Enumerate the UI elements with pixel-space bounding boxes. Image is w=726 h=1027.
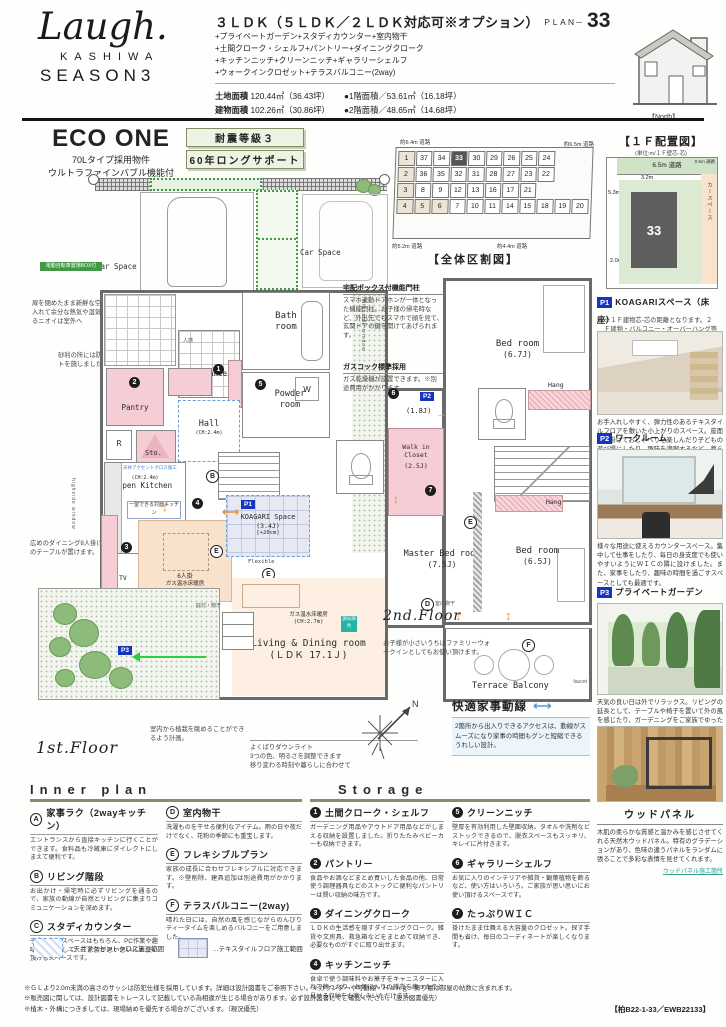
- inner-badge-c: C: [30, 920, 43, 933]
- feature-line-1: +プライベートガーデン+スタディカウンター+室内物干: [215, 31, 615, 43]
- hang1-label: Hang: [548, 381, 564, 389]
- feature-line-3: +キッチンニッチ+クリーンニッチ+ギャラリーシェルフ: [215, 55, 615, 67]
- legend-ceiling: …天井アクセントクロス施工範囲: [33, 938, 164, 958]
- lot-32: 32: [450, 167, 467, 182]
- lot-16: 16: [484, 183, 501, 198]
- layout-1f-title: 【１Ｆ配置図】: [600, 133, 722, 149]
- inner-title-a: 家事ラク（2wayキッチン）: [46, 806, 158, 832]
- legend-ceiling-swatch-icon: [33, 938, 63, 958]
- legend-textile: …テキスタイルフロア施工範囲: [178, 938, 303, 958]
- floor2-area: ●2階面積／48.65㎡（14.68坪）: [344, 103, 462, 117]
- storage-badge-2: 2: [129, 377, 140, 388]
- lot-11: 11: [484, 199, 501, 214]
- lot-29: 29: [485, 151, 502, 166]
- lot-17: 17: [502, 183, 519, 198]
- footer-note-1: ※ＧＬより2.0m未満の高さのサッシは防犯仕様を採用しています。詳細は設計図書を…: [24, 984, 664, 994]
- inner-badge-e: E: [166, 848, 179, 861]
- badge-support: 60年ロングサポート: [186, 150, 304, 169]
- p2-chip: P2: [420, 392, 434, 401]
- koagari-step: [+20cm]: [227, 530, 309, 537]
- logo-kashiwa: KASHIWA: [60, 51, 208, 63]
- storage-item-5: 5クリーンニッチ 壁厚を有効利用した壁面収納。タオルや洗剤などストックできるので…: [452, 806, 590, 850]
- p3-title: プライベートガーデン: [615, 587, 703, 597]
- inner-item-e: Eフレキシブルプラン 家族の成長に合わせフレキシブルに対応できます。※壁削除、建…: [166, 848, 302, 892]
- lot-37: 37: [415, 151, 432, 166]
- downlight-chip: 調光調色: [341, 616, 357, 632]
- brand-logo: Laugh. KASHIWA SEASON3: [38, 8, 208, 86]
- storage-badge-4: 4: [192, 498, 203, 509]
- faucet-label: faucet: [573, 679, 587, 685]
- hang1-bar: [528, 390, 591, 410]
- land-area-value: 120.44㎡（36.43坪）: [251, 91, 330, 101]
- inner-badge-d: D: [166, 806, 179, 819]
- shrub-icon: [79, 651, 111, 679]
- lot-7: 7: [449, 199, 466, 214]
- legend-textile-label: …テキスタイルフロア施工範囲: [212, 943, 303, 953]
- tv-board: [101, 515, 118, 589]
- inner-title-d: 室内物干: [183, 806, 221, 819]
- ceiling-cloth-note: 天井アクセントクロス施工: [123, 465, 177, 471]
- storage-num-2: 2: [310, 858, 321, 869]
- p2-photo: [597, 449, 723, 539]
- wood-title: ウッドパネル: [597, 806, 723, 825]
- pantry-label: Pantry: [107, 403, 163, 412]
- eco-one-title: ECO ONE: [36, 127, 186, 151]
- storage-title-4: キッチンニッチ: [325, 958, 392, 971]
- storage-title-3: ダイニングクローク: [325, 907, 410, 920]
- planter-box: [256, 190, 298, 290]
- shrub-icon: [109, 667, 133, 689]
- stairs-1f: [218, 452, 280, 500]
- storage-item-7: 7たっぷりＷＩＣ 掛けたまま仕舞える大容量のクロゼット。探す手間も省け、毎日のコ…: [452, 907, 590, 951]
- inner-title-b: リビング階段: [47, 870, 104, 883]
- p3-photo: [597, 603, 723, 695]
- sitemap: 約6.4m 道路 約6.5m 道路 約5.2m 道路 約4.4m 道路 1373…: [392, 138, 594, 250]
- hang2-label: Hang: [546, 498, 562, 506]
- logo-season: SEASON3: [40, 66, 208, 86]
- garden-arrowhead-icon: [132, 652, 140, 662]
- shrub-icon: [49, 637, 71, 657]
- storage-badge-5: 5: [255, 379, 266, 390]
- storage-body-6: お気に入りのインテリアや雑貨・観葉植物を飾るなど、使い方はいろいろ。ご家族が思い…: [452, 875, 590, 901]
- layout-path: 0.6m 通路: [695, 159, 715, 165]
- bed-icon: [543, 285, 585, 353]
- storage-body-7: 掛けたまま仕舞える大容量のクロゼット。探す手間も省け、毎日のコーディネートが楽し…: [452, 925, 590, 951]
- layout-1f-unit: (単位:m/１Ｆ壁芯-芯): [600, 149, 722, 157]
- inner-title-f: テラスバルコニー(2way): [183, 899, 290, 912]
- storage-body-1: ガーデニング用品やアウトドア用品などがしまえる収納を設置しました。折りたたみベビ…: [310, 824, 444, 850]
- terrace-chair-icon: [474, 655, 494, 675]
- plan-badge-e3: E: [464, 516, 477, 529]
- plan-badge-f: F: [522, 639, 535, 652]
- inner-body-d: 洗濯ものを干せる便利なアイテム。雨の日や夜だけでなく、花粉の季節にも重宝します。: [166, 824, 302, 841]
- plants-annotation: 室内から植栽を眺めることができるよう計画。: [150, 726, 246, 744]
- lot-4: 4: [396, 199, 413, 214]
- flexible-label: Flexible: [248, 559, 275, 565]
- wood-body: 木肌の柔らかな質感と温かみを感じさせてくれる天然木ウッドパネル。特有のグラデーシ…: [597, 828, 723, 865]
- terrace-chair-icon: [534, 655, 554, 675]
- lot-33: 33: [450, 151, 467, 166]
- inner-badge-b: B: [30, 870, 43, 883]
- stairs-2f: [494, 446, 590, 502]
- flow-arrow-icon: ⟷: [222, 505, 239, 519]
- storage-title-5: クリーンニッチ: [467, 806, 533, 819]
- plan-type: ３ＬＤＫ（５ＬＤＫ／２ＬＤＫ対応可※オプション）: [215, 12, 539, 31]
- storage-badge-7: 7: [425, 485, 436, 496]
- storage-col2: 5クリーンニッチ 壁厚を有効利用した壁面収納。タオルや洗剤などストックできるので…: [452, 806, 590, 958]
- compass-n: N: [412, 699, 419, 709]
- floor2-label: 2nd.Floor: [383, 608, 461, 624]
- lot-27: 27: [502, 167, 519, 182]
- inner-item-b: Bリビング階段 お出かけ・帰宅時に必ずリビングを通るので、家族の動線が自然とリビ…: [30, 870, 158, 914]
- inner-plan-title: Inner plan: [30, 782, 302, 797]
- inner-item-a: A家事ラク（2wayキッチン） エントランスから直接キッチンに行くことができます…: [30, 806, 158, 863]
- lot-9: 9: [432, 183, 449, 198]
- sensor-label: 人感: [183, 337, 193, 344]
- storage-title-1: 土間クローク・シェルフ: [325, 806, 429, 819]
- room-toilet-2f: [478, 388, 526, 440]
- post-annotation: 宅配ボックス付機能門柱 スマホ連動ドアホンが一体となった機能門柱。お子様の帰宅時…: [343, 283, 443, 341]
- car-space-1: [140, 192, 254, 292]
- flow-title: 快適家事動線: [452, 698, 527, 714]
- lot-30: 30: [468, 151, 485, 166]
- lot-36: 36: [415, 167, 432, 182]
- fridge-box: R: [106, 430, 132, 460]
- floor-heating-1: ガス温水床暖房: [139, 581, 231, 588]
- storage-col1: 1土間クローク・シェルフ ガーデニング用品やアウトドア用品などがしまえる収納を設…: [310, 806, 444, 1009]
- storage-section: Storage: [310, 782, 590, 802]
- storage-num-1: 1: [310, 807, 321, 818]
- storage-title-2: パントリー: [325, 857, 373, 870]
- lot-19: 19: [554, 199, 571, 214]
- terrace-table-icon: [498, 649, 530, 681]
- flow-note: 快適家事動線 ⟷ 2箇所から出入りできるアクセスは、動線がスムーズになり家事の時…: [452, 698, 590, 756]
- sitemap-grid: 1373433302926252423635323128272322389121…: [392, 147, 593, 239]
- room-pantry: Pantry 2: [106, 368, 164, 426]
- lot-35: 35: [432, 167, 449, 182]
- inner-badge-f: F: [166, 899, 179, 912]
- flyer-page: Laugh. KASHIWA SEASON3 ３ＬＤＫ（５ＬＤＫ／２ＬＤＫ対応可…: [0, 0, 726, 1027]
- porch-label: 庇付・物干: [196, 602, 221, 609]
- kitchen-note-box: 一望できる対面キッチン: [127, 501, 181, 519]
- room-powder: Powder room W 5: [242, 372, 330, 438]
- p1-chip: P1: [241, 500, 255, 509]
- shrub-icon: [55, 669, 75, 687]
- flow-arrow-icon: →: [436, 408, 447, 420]
- storage-title: Storage: [338, 782, 590, 797]
- road-bottom-left: 約5.2m 道路: [392, 242, 422, 250]
- lot-2: 2: [397, 167, 414, 182]
- p2-body: 様々な用途に使えるカウンタースペース。集中して仕事をしたり、毎日の身支度でも使い…: [597, 542, 723, 588]
- storage-num-5: 5: [452, 807, 463, 818]
- lot-10: 10: [466, 199, 483, 214]
- wood-link: ウッドパネル施工箇所: [597, 866, 723, 875]
- wic-size: (2.5J): [389, 462, 443, 470]
- storage-rule: [310, 799, 590, 802]
- workroom-size: (1.8J): [406, 407, 431, 415]
- hedge-strip: [150, 178, 262, 191]
- wood-photo: [597, 726, 723, 802]
- lot-3: 3: [397, 183, 414, 198]
- porch-steps: [222, 612, 254, 650]
- koagari-size: (3.4J): [227, 522, 309, 530]
- cert-badges: 耐震等級３ 60年ロングサポート: [186, 128, 304, 169]
- layout-carspace: カースペース: [701, 174, 717, 284]
- room-cloak: [168, 368, 212, 396]
- logo-script: Laugh.: [38, 8, 208, 45]
- flow-arrow-icon: ↕: [505, 608, 512, 623]
- plan-label: ＰＬＡＮ－: [543, 17, 583, 28]
- shrub-icon: [69, 619, 99, 647]
- floor1-area: ●1階面積／53.61㎡（16.18坪）: [344, 89, 462, 103]
- storage-badge-3: 3: [121, 542, 132, 553]
- room-bath: Bath room: [242, 292, 330, 370]
- inner-item-f: Fテラスバルコニー(2way) 晴れた日には、自然の風を感じながらのんびりティー…: [166, 899, 302, 943]
- wic-label-1: Walk in: [389, 443, 443, 451]
- p3-badge: P3: [597, 587, 612, 598]
- bike-storage-label: 電動自転車置場BOX付: [40, 262, 102, 271]
- toilet-tank-icon: [493, 419, 515, 429]
- storage-body-2: 食品やお酒などまとめ買いした食品の他、日常使う調理器具などのストックに便利なパン…: [310, 875, 444, 901]
- footer-note-2: ※販売図に関しては、設計図書をトレースして記載している為相違が生じる場合がありま…: [24, 994, 664, 1004]
- tv-label: TV: [119, 574, 127, 582]
- storage-badge-1: 1: [213, 364, 224, 375]
- car-space-2: [302, 194, 388, 288]
- garden-arrow: [138, 656, 206, 658]
- storage-title-7: たっぷりＷＩＣ: [467, 907, 534, 920]
- eco-one-block: ECO ONE 70Lタイプ採用物件 ウルトラファインバブル機能付: [36, 127, 186, 179]
- inner-title-c: スタディカウンター: [47, 920, 132, 933]
- sofa-icon: [242, 584, 300, 608]
- badge-seismic: 耐震等級３: [186, 128, 304, 147]
- layout-building: 33: [631, 192, 677, 268]
- room-bed65: Bed room (6.5J): [486, 512, 589, 612]
- p1-photo: [597, 331, 723, 415]
- storage-num-3: 3: [310, 908, 321, 919]
- living-room: ガス温水床暖房 (CH:2.7m) 調光調色 Living & Dining r…: [232, 578, 385, 696]
- bed-icon: [557, 548, 585, 602]
- flow-body: 2箇所から出入りできるアクセスは、動線がスムーズになり家事の時間もグンと短縮でき…: [452, 717, 590, 756]
- room-sto: Sto.: [136, 430, 176, 464]
- car-space-2-label: Car Space: [300, 248, 341, 257]
- wic-annotation: お子様が小さいうちはファミリーウォークインとしてもお使い頂けます。: [383, 640, 491, 658]
- dining-table-icon: [163, 533, 209, 571]
- fence-post-icon: [88, 174, 99, 185]
- room-toilet: [336, 440, 384, 494]
- photo-card-p3: P3プライベートガーデン 天気の良い日は外でリラックス。リビングの延長として、テ…: [597, 582, 723, 735]
- storage-item-2: 2パントリー 食品やお酒などまとめ買いした食品の他、日常使う調理器具などのストッ…: [310, 857, 444, 901]
- lot-34: 34: [433, 151, 450, 166]
- post-annotation-title: 宅配ボックス付機能門柱: [343, 283, 443, 295]
- road-top-left: 約6.4m 道路: [400, 138, 430, 146]
- legend-ceiling-label: …天井アクセントクロス施工範囲: [67, 943, 164, 953]
- plan-summary: ３ＬＤＫ（５ＬＤＫ／２ＬＤＫ対応可※オプション） ＰＬＡＮ－ 33 +プライベー…: [215, 12, 615, 118]
- lot-15: 15: [519, 199, 536, 214]
- lot-31: 31: [467, 167, 484, 182]
- photo-card-p2: P2ワークルーム 様々な用途に使えるカウンタースペース。集中して仕事をしたり、毎…: [597, 428, 723, 588]
- toilet-tank-icon: [349, 475, 373, 485]
- house-elevation-icon: [633, 26, 717, 110]
- land-area-label: 土地面積: [215, 91, 248, 101]
- inner-body-e: 家族の成長に合わせフレキシブルに対応できます。※壁削除、建具追加は別途費用がかか…: [166, 866, 302, 892]
- layout-1f-diagram: 6.5m 道路 0.6m 通路 3.2m 5.3m 2.9m 2.0m 2.9m…: [606, 157, 718, 289]
- storage-title-6: ギャラリーシェルフ: [467, 857, 552, 870]
- floor1-label: 1st.Floor: [36, 738, 118, 757]
- eco-one-line1: 70Lタイプ採用物件: [36, 153, 186, 166]
- lot-22: 22: [537, 167, 554, 182]
- sto-label: Sto.: [145, 449, 162, 458]
- lot-28: 28: [485, 167, 502, 182]
- building-area-value: 102.26㎡（30.86坪）: [251, 105, 330, 115]
- storage-body-3: ＬＤＫの生活感を隠すダイニングクローク。雑貨や文房具、救急箱などをまとめて収納で…: [310, 925, 444, 951]
- lot-5: 5: [414, 199, 431, 214]
- dining-seat-label: 6人掛: [139, 573, 231, 581]
- storage-num-4: 4: [310, 959, 321, 970]
- feature-line-4: +ウォークインクロゼット+テラスバルコニー(2way): [215, 67, 615, 79]
- washer-box: W: [295, 377, 319, 401]
- flow-arrow-icon: ↕: [393, 492, 399, 506]
- layout-carspace-label: カースペース: [705, 182, 713, 221]
- inner-plan-section: Inner plan: [30, 782, 302, 802]
- feature-line-2: +土間クローク・シェルフ+パントリー+ダイニングクローク: [215, 43, 615, 55]
- p1-badge: P1: [597, 297, 612, 308]
- storage-num-6: 6: [452, 858, 463, 869]
- post-annotation-body: スマホ連動ドアホンが一体となった機能門柱。お子様の帰宅時など、外出先でもスマホで…: [343, 297, 443, 341]
- inner-badge-a: A: [30, 813, 42, 826]
- p2-badge: P2: [597, 433, 612, 444]
- gas-annotation-title: ガスコック標準採用: [343, 362, 443, 374]
- plan-code: 【柏B22-1-33／EWB22133】: [560, 1004, 710, 1015]
- car-icon: [319, 201, 373, 281]
- lot-25: 25: [520, 151, 537, 166]
- storage-badge-6: 6: [388, 388, 399, 399]
- highside-window-left: highside window: [70, 478, 76, 568]
- header-divider: [215, 83, 615, 84]
- inner-item-d: D室内物干 洗濯ものを干せる便利なアイテム。雨の日や夜だけでなく、花粉の季節にも…: [166, 806, 302, 841]
- flexible-wall: [473, 492, 482, 612]
- storage-item-1: 1土間クローク・シェルフ ガーデニング用品やアウトドア用品などがしまえる収納を設…: [310, 806, 444, 850]
- header-rule: [22, 118, 704, 121]
- storage-num-7: 7: [452, 908, 463, 919]
- lot-12: 12: [449, 183, 466, 198]
- flow-arrow-blue-icon: ⟷: [533, 698, 552, 714]
- legend-textile-swatch-icon: [178, 938, 208, 958]
- car-space-1-label: Car Space: [96, 262, 137, 271]
- lot-8: 8: [414, 183, 431, 198]
- living-label-2: (ＬＤＫ 17.1Ｊ): [232, 650, 385, 662]
- koagari-label: KOAGARI Space: [227, 513, 309, 522]
- lot-23: 23: [520, 167, 537, 182]
- building-area-label: 建物面積: [215, 105, 248, 115]
- inner-title-e: フレキシブルプラン: [183, 848, 269, 861]
- road-bottom-right: 約4.4m 道路: [497, 242, 527, 250]
- photo-card-wood: ウッドパネル 木肌の柔らかな質感と温かみを感じさせてくれる天然木ウッドパネル。特…: [597, 726, 723, 875]
- lot-21: 21: [519, 183, 536, 198]
- lot-14: 14: [501, 199, 518, 214]
- hall-ch: (CH:2.4m): [179, 430, 239, 436]
- living-label-1: Living & Dining room: [232, 638, 385, 650]
- p2-title: ワークルーム: [615, 433, 667, 443]
- lot-18: 18: [536, 199, 553, 214]
- inner-body-a: エントランスから直接キッチンに行くことができます。食料品も冷蔵庫にダイレクトにし…: [30, 837, 158, 863]
- wic-label-2: Closet: [389, 451, 443, 459]
- floor-heating-2: ガス温水床暖房: [232, 612, 385, 619]
- lot-6: 6: [431, 199, 448, 214]
- storage-item-6: 6ギャラリーシェルフ お気に入りのインテリアや雑貨・観葉植物を飾るなど、使い方は…: [452, 857, 590, 901]
- monohoshi-label: 室内物干: [435, 600, 455, 607]
- flow-arrow-icon: ↕: [162, 500, 168, 514]
- plan-badge-b: B: [206, 470, 219, 483]
- storage-body-5: 壁厚を有効利用した壁面収納。タオルや洗剤などストックできるので、脱衣スペースもス…: [452, 824, 590, 850]
- living-ch: (CH:2.7m): [232, 619, 385, 626]
- compass-icon: N: [358, 695, 424, 767]
- sitemap-caption: 【全体区割図】: [428, 251, 519, 267]
- fridge-label: R: [107, 439, 131, 449]
- lot-20: 20: [571, 199, 588, 214]
- lot-1: 1: [398, 151, 415, 166]
- car-icon: [167, 197, 227, 287]
- hall-label: Hall: [179, 419, 239, 430]
- approach-tiles: [104, 294, 176, 366]
- plan-badge-e1: E: [210, 545, 223, 558]
- fence-post-icon: [379, 174, 390, 185]
- inner-plan-rule: [30, 799, 302, 802]
- garden: [38, 588, 220, 700]
- p1-title: KOAGARIスペース（床座）: [597, 297, 710, 325]
- bathtub-icon: [301, 301, 323, 361]
- inner-plan-col2: D室内物干 洗濯ものを干せる便利なアイテム。雨の日や夜だけでなく、花粉の季節にも…: [166, 806, 302, 949]
- lot-24: 24: [538, 151, 555, 166]
- p3-chip: P3: [118, 646, 132, 655]
- storage-item-3: 3ダイニングクローク ＬＤＫの生活感を隠すダイニングクローク。雑貨や文房具、救急…: [310, 907, 444, 951]
- terrace-label: Terrace Balcony: [472, 681, 549, 692]
- lot-13: 13: [467, 183, 484, 198]
- lot-26: 26: [503, 151, 520, 166]
- inner-body-b: お出かけ・帰宅時に必ずリビングを通るので、家族の動線が自然とリビングに集まりコミ…: [30, 888, 158, 914]
- plan-number: 33: [587, 12, 610, 31]
